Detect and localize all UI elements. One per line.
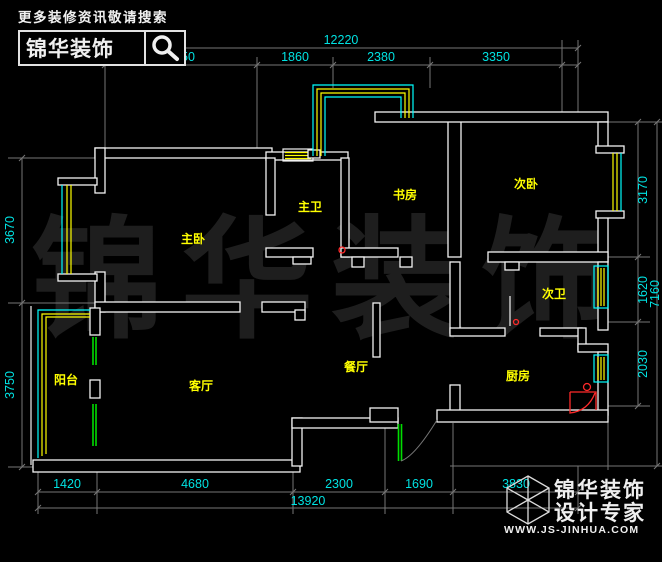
dim-right-overall: 7160 <box>648 280 662 308</box>
room-label-living: 客厅 <box>188 378 213 393</box>
search-icon <box>146 32 184 64</box>
floorplan-screenshot: 锦华装饰 12220 4050 1860 2380 3350 3670 3750… <box>0 0 662 562</box>
window-cap <box>58 274 97 281</box>
search-tagline: 更多装修资讯敬请搜索 <box>18 6 168 26</box>
dim-top-overall: 12220 <box>324 33 359 47</box>
brand-name: 锦华装饰 <box>20 33 144 63</box>
cube-logo-icon <box>504 474 552 526</box>
footer-website: WWW.JS-JINHUA.COM <box>504 524 639 536</box>
footer-brand: 锦华装饰 设计专家 WWW.JS-JINHUA.COM <box>496 468 662 558</box>
dim-left-seg1: 3670 <box>3 216 17 244</box>
room-label-study: 书房 <box>393 187 417 202</box>
dim-bottom-overall: 13920 <box>291 494 326 508</box>
dim-left-seg2: 3750 <box>3 371 17 399</box>
room-label-master-bedroom: 主卧 <box>181 231 205 246</box>
dim-bottom-seg4: 1690 <box>405 477 433 491</box>
brand-search-box: 锦华装饰 <box>18 30 186 66</box>
dim-right-seg1: 3170 <box>636 176 650 204</box>
entry-door-swing <box>401 420 437 461</box>
dim-bottom-seg2: 4680 <box>181 477 209 491</box>
room-label-kitchen: 厨房 <box>506 368 530 383</box>
room-label-dining: 餐厅 <box>344 359 368 374</box>
dim-top-seg3: 2380 <box>367 50 395 64</box>
entry-door-icon <box>399 424 402 461</box>
room-label-master-bath: 主卫 <box>298 199 322 214</box>
room-label-balcony: 阳台 <box>54 372 78 387</box>
dim-bottom-seg3: 2300 <box>325 477 353 491</box>
dim-top-seg2: 1860 <box>281 50 309 64</box>
dim-top-seg4: 3350 <box>482 50 510 64</box>
dim-right-seg3: 2030 <box>636 350 650 378</box>
room-label-second-bath: 次卫 <box>542 286 566 301</box>
window-cap <box>58 178 97 185</box>
balcony-sliding-door2-icon <box>93 404 96 446</box>
dim-bottom-seg1: 1420 <box>53 477 81 491</box>
room-label-second-bedroom: 次卧 <box>514 176 538 191</box>
stove-icon <box>570 384 596 414</box>
footer-brand-line2: 设计专家 <box>554 497 646 527</box>
